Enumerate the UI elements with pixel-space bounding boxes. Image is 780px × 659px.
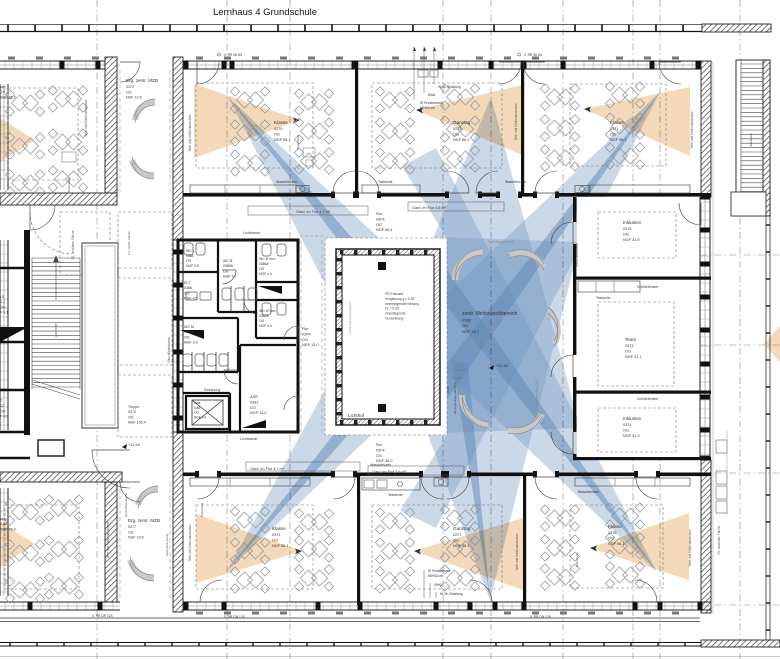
- svg-text:sse: sse: [0, 85, 6, 89]
- svg-text:Gard. im Flur 3,6 m²: Gard. im Flur 3,6 m²: [412, 206, 447, 210]
- svg-text:Klasse: Klasse: [610, 120, 624, 125]
- svg-text:NGF 4.5: NGF 4.5: [184, 297, 198, 301]
- svg-text:+12,44: +12,44: [496, 364, 508, 368]
- svg-text:0.6B: 0.6B: [0, 522, 8, 526]
- svg-text:Treppe: Treppe: [128, 405, 139, 409]
- svg-text:Verglasung g ≤ 0,35: Verglasung g ≤ 0,35: [385, 297, 414, 301]
- svg-text:OG: OG: [0, 409, 6, 413]
- svg-text:02: 02: [0, 404, 4, 408]
- svg-text:0386: 0386: [184, 286, 192, 290]
- svg-text:Inklusion: Inklusion: [623, 220, 642, 225]
- svg-text:0 RR 06 U5: 0 RR 06 U5: [224, 53, 242, 57]
- svg-text:OG: OG: [453, 133, 459, 137]
- svg-text:NGF 49.2: NGF 49.2: [462, 329, 480, 334]
- svg-text:0279: 0279: [274, 127, 282, 131]
- svg-text:Bodentank: Bodentank: [296, 134, 300, 149]
- svg-text:Flur: Flur: [376, 443, 383, 447]
- svg-text:Team: Team: [625, 337, 636, 342]
- svg-text:NGF 65.1: NGF 65.1: [272, 544, 288, 548]
- svg-text:WC B Vorr.: WC B Vorr.: [259, 257, 276, 261]
- svg-text:OG: OG: [462, 323, 468, 328]
- svg-text:0275: 0275: [608, 531, 616, 535]
- svg-text:NGF 14.0: NGF 14.0: [250, 411, 266, 415]
- svg-text:NGF 66.1: NGF 66.1: [453, 138, 469, 142]
- svg-text:OG: OG: [194, 411, 199, 415]
- svg-text:0374: 0374: [623, 423, 631, 427]
- svg-text:OG: OG: [128, 415, 134, 419]
- svg-text:0376: 0376: [623, 227, 631, 231]
- svg-text:0 RR 06 U5: 0 RR 06 U5: [524, 53, 542, 57]
- svg-text:Gard. im Flur 3,6 m²: Gard. im Flur 3,6 m²: [372, 470, 407, 474]
- svg-text:OG: OG: [259, 319, 265, 323]
- svg-text:NGF 13.0: NGF 13.0: [302, 343, 318, 347]
- svg-text:Bodentank: Bodentank: [575, 552, 579, 567]
- svg-text:Medienassistenz: Medienassistenz: [575, 243, 579, 267]
- svg-text:WC L: WC L: [186, 249, 195, 253]
- svg-text:0377: 0377: [128, 525, 136, 529]
- svg-text:0382a: 0382a: [259, 314, 269, 318]
- svg-text:Tafel und Medienassistenz: Tafel und Medienassistenz: [188, 524, 192, 562]
- svg-text:Klasse: Klasse: [608, 524, 622, 529]
- svg-text:Gard. im Flur 4,7 m²: Gard. im Flur 4,7 m²: [296, 210, 331, 214]
- svg-text:OG: OG: [453, 539, 459, 543]
- svg-text:sse: sse: [0, 517, 6, 521]
- svg-text:0380: 0380: [462, 318, 472, 323]
- svg-text:OG: OG: [274, 133, 280, 137]
- svg-text:NGF 10.6: NGF 10.6: [128, 536, 144, 540]
- svg-text:Schlitzfenster: Schlitzfenster: [637, 397, 659, 401]
- svg-text:Tafel und Medienassistenz: Tafel und Medienassistenz: [688, 529, 692, 567]
- svg-text:ELT: ELT: [184, 281, 191, 285]
- svg-text:F​c = 0,35: F​c = 0,35: [385, 307, 399, 311]
- svg-text:NGF 31.9: NGF 31.9: [623, 238, 639, 242]
- svg-text:Möst: Möst: [428, 93, 435, 97]
- svg-text:0381: 0381: [250, 400, 258, 404]
- svg-text:Flur: Flur: [376, 212, 383, 216]
- svg-text:Waschbecken: Waschbecken: [276, 180, 297, 184]
- svg-text:Bodentank: Bodentank: [67, 177, 71, 192]
- svg-text:02F4: 02F4: [376, 448, 385, 452]
- svg-text:OG: OG: [623, 429, 629, 433]
- svg-text:NGF 31.9: NGF 31.9: [623, 434, 639, 438]
- svg-text:Fü. stuhlb. Fläche: Fü. stuhlb. Fläche: [127, 231, 131, 255]
- svg-text:W 3b. Brüstung: W 3b. Brüstung: [438, 85, 461, 89]
- svg-text:Flur: Flur: [302, 327, 309, 331]
- svg-text:OG: OG: [302, 338, 308, 342]
- svg-text:NGF 10.6: NGF 10.6: [126, 96, 142, 100]
- svg-text:OG: OG: [610, 133, 616, 137]
- svg-text:OG: OG: [608, 537, 614, 541]
- svg-text:Laufbreite: Laufbreite: [54, 323, 58, 337]
- svg-text:innenliegender Behang: innenliegender Behang: [385, 302, 419, 306]
- svg-text:NGF 4.9: NGF 4.9: [194, 415, 206, 419]
- svg-text:0273: 0273: [453, 127, 461, 131]
- svg-text:Erg. zentr. MZB: Erg. zentr. MZB: [128, 518, 160, 523]
- svg-text:02F4: 02F4: [376, 217, 385, 221]
- svg-text:F 4.2: F 4.2: [0, 415, 8, 419]
- svg-text:Inklusion: Inklusion: [623, 416, 642, 421]
- svg-text:OG: OG: [128, 530, 134, 534]
- svg-text:0372: 0372: [128, 410, 136, 414]
- svg-text:+12,44: +12,44: [128, 443, 140, 447]
- svg-text:Seite Möb einzig: Seite Möb einzig: [165, 534, 169, 557]
- svg-text:NGF 66.1: NGF 66.1: [608, 542, 624, 546]
- svg-text:NGF 66.1: NGF 66.1: [453, 544, 469, 548]
- svg-text:69H53 cm: 69H53 cm: [420, 106, 435, 110]
- svg-text:OG: OG: [0, 305, 6, 309]
- svg-text:Fü. abstuhlb. Fläche: Fü. abstuhlb. Fläche: [717, 525, 721, 554]
- svg-text:NGF 46.0: NGF 46.0: [0, 527, 16, 531]
- svg-text:Aufz.: Aufz.: [194, 401, 201, 405]
- svg-text:49H2: 49H2: [434, 583, 442, 587]
- svg-text:+6,02: +6,02: [446, 386, 450, 394]
- svg-text:NGF 105.4: NGF 105.4: [128, 421, 146, 425]
- svg-text:OG: OG: [623, 233, 629, 237]
- svg-text:F 9.1: F 9.1: [0, 311, 8, 315]
- svg-text:Tafel und Medienassistenz: Tafel und Medienassistenz: [690, 111, 694, 149]
- svg-text:0382b: 0382b: [184, 330, 194, 334]
- svg-text:02F4: 02F4: [302, 332, 311, 336]
- svg-text:Waschbecken: Waschbecken: [578, 490, 599, 494]
- svg-text:0.88: 0.88: [194, 406, 200, 410]
- svg-text:69H53 cm: 69H53 cm: [428, 574, 443, 578]
- svg-text:WC B: WC B: [223, 259, 233, 263]
- svg-text:(vorbereitet mög 2/2G): (vorbereitet mög 2/2G): [535, 379, 539, 411]
- svg-text:Lichtkanal: Lichtkanal: [240, 437, 257, 441]
- svg-text:0371: 0371: [610, 127, 618, 131]
- svg-text:OG: OG: [250, 406, 256, 410]
- svg-text:Klasse: Klasse: [274, 120, 288, 125]
- svg-text:0 RR DN 125: 0 RR DN 125: [224, 615, 245, 619]
- svg-text:NGF 41.1: NGF 41.1: [625, 355, 641, 359]
- svg-text:Schlitzfenster: Schlitzfenster: [637, 285, 659, 289]
- svg-text:OG: OG: [126, 90, 132, 94]
- svg-text:W 3b. Brüstung: W 3b. Brüstung: [440, 592, 463, 596]
- svg-text:innenliegende: innenliegende: [385, 312, 406, 316]
- svg-text:W Fensterbank: W Fensterbank: [420, 101, 443, 105]
- svg-text:OG: OG: [184, 291, 190, 295]
- svg-text:VH Feuerlasten 69V,28 m: VH Feuerlasten 69V,28 m: [453, 381, 457, 414]
- svg-text:0 RR DN 125: 0 RR DN 125: [530, 615, 551, 619]
- svg-text:Ganztag: Ganztag: [453, 526, 471, 531]
- svg-text:OG: OG: [376, 223, 382, 227]
- svg-text:WC M: WC M: [184, 325, 194, 329]
- svg-text:0372: 0372: [126, 85, 134, 89]
- svg-text:Tafel und Medienassistenz: Tafel und Medienassistenz: [84, 99, 88, 137]
- svg-text:Fü. stuhlbare Fläche: Fü. stuhlbare Fläche: [71, 230, 75, 259]
- svg-text:Tafel und Medienassistenz: Tafel und Medienassistenz: [514, 103, 518, 141]
- svg-text:Lichtkanal weit 4 still lich: Lichtkanal weit 4 still lich: [348, 301, 352, 334]
- svg-text:Lichthof: Lichthof: [348, 413, 365, 418]
- svg-text:NGF 60.4: NGF 60.4: [376, 228, 392, 232]
- svg-text:Tafel und Medienassistenz: Tafel und Medienassistenz: [188, 114, 192, 152]
- svg-text:Gard. im Flur 4,7 m²: Gard. im Flur 4,7 m²: [250, 467, 285, 471]
- svg-text:Klasse: Klasse: [272, 526, 286, 531]
- svg-text:Einbauung: Einbauung: [204, 388, 220, 392]
- svg-text:0277: 0277: [453, 533, 461, 537]
- svg-text:zentr. Mehrzweckbereich: zentr. Mehrzweckbereich: [462, 311, 518, 317]
- svg-text:NGF 66.1: NGF 66.1: [610, 138, 626, 142]
- svg-text:0271: 0271: [272, 533, 280, 537]
- svg-text:Verdunklung: Verdunklung: [385, 317, 403, 321]
- svg-text:Teeküche: Teeküche: [388, 493, 403, 497]
- svg-text:0385b: 0385b: [223, 264, 233, 268]
- svg-text:Bodentank: Bodentank: [200, 502, 204, 517]
- svg-text:0385a: 0385a: [259, 262, 269, 266]
- svg-text:0384: 0384: [186, 254, 194, 258]
- svg-text:NGF 65.1: NGF 65.1: [274, 138, 290, 142]
- svg-text:NGF 4.5: NGF 4.5: [259, 324, 272, 328]
- svg-text:0 RR DR 125: 0 RR DR 125: [92, 614, 113, 618]
- svg-text:OG: OG: [259, 267, 265, 271]
- svg-text:WC M Vorr.: WC M Vorr.: [259, 309, 276, 313]
- svg-text:Waschbecken: Waschbecken: [505, 180, 526, 184]
- svg-text:PR-Fassade: PR-Fassade: [385, 292, 403, 296]
- svg-text:Teeküche: Teeküche: [596, 296, 611, 300]
- svg-text:32x18x29: 32x18x29: [749, 133, 753, 146]
- svg-text:OG: OG: [625, 350, 631, 354]
- svg-text:OG: OG: [184, 335, 190, 339]
- svg-text:Waschbecken: Waschbecken: [370, 463, 391, 467]
- svg-text:Lernhaus 4 Grundschule: Lernhaus 4 Grundschule: [213, 7, 317, 18]
- svg-text:0373: 0373: [625, 344, 633, 348]
- svg-text:NGF 2.8: NGF 2.8: [186, 264, 199, 268]
- svg-text:NGF 4.4: NGF 4.4: [259, 272, 272, 276]
- svg-text:0.2: 0.2: [0, 300, 5, 304]
- svg-text:0.6: 0.6: [0, 90, 5, 94]
- svg-text:Tafel und Medienassistenz: Tafel und Medienassistenz: [515, 533, 519, 571]
- svg-text:Ganztag: Ganztag: [453, 120, 471, 125]
- svg-text:Teeküche: Teeküche: [378, 180, 393, 184]
- svg-text:Vorhangschiene: Vorhangschiene: [488, 240, 514, 244]
- svg-text:W Fensterbank: W Fensterbank: [428, 569, 451, 573]
- svg-text:OG: OG: [186, 259, 192, 263]
- svg-text:OG: OG: [376, 454, 382, 458]
- svg-text:LS: LS: [0, 295, 5, 299]
- svg-text:Tafel und Medienassistenz: Tafel und Medienassistenz: [106, 521, 110, 559]
- svg-text:OG: OG: [272, 539, 278, 543]
- svg-text:NGF 3.5: NGF 3.5: [184, 341, 198, 345]
- svg-text:RauchBrandwand: RauchBrandwand: [167, 337, 171, 363]
- svg-text:NGF 66.0: NGF 66.0: [0, 95, 16, 99]
- svg-text:Lichtkanal: Lichtkanal: [243, 231, 260, 235]
- svg-text:ASR: ASR: [250, 395, 258, 399]
